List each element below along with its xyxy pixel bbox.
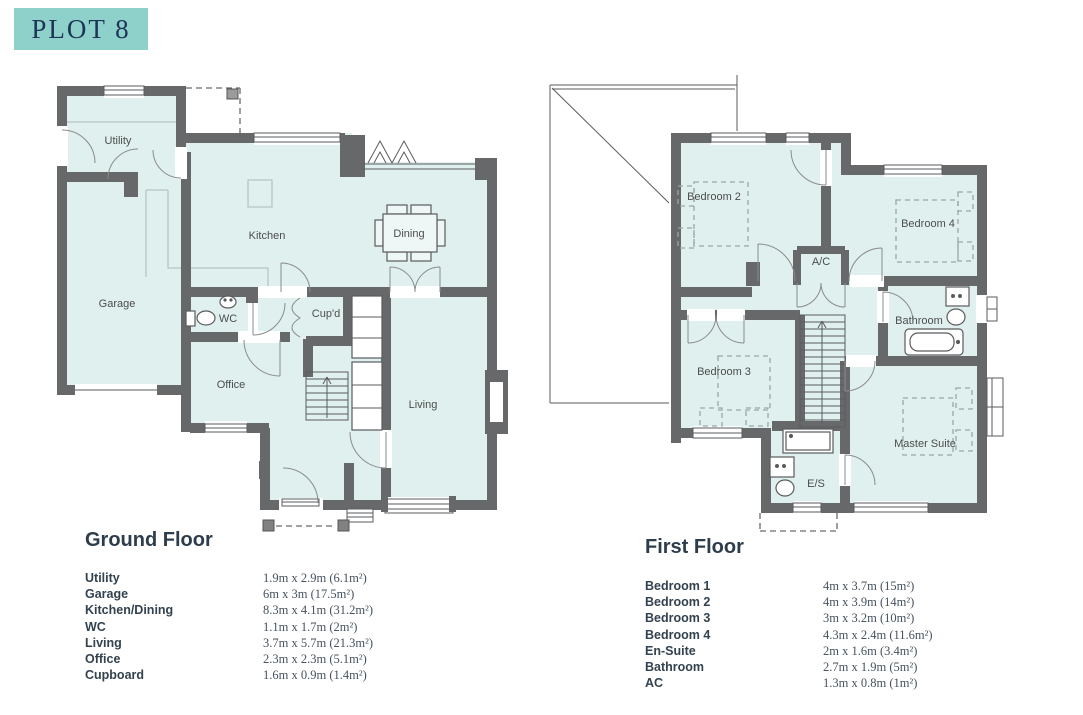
room-label-bedroom2: Bedroom 2 [687,191,741,203]
table-row: Living3.7m x 5.7m (21.3m²) [85,635,373,651]
room-name: Bedroom 1 [645,578,823,594]
room-name: Bathroom [645,659,823,675]
sink-icon [220,296,236,308]
table-row: Bedroom 14m x 3.7m (15m²) [645,578,933,594]
room-dims: 1.3m x 0.8m (1m²) [823,675,917,691]
table-row: Utility1.9m x 2.9m (6.1m²) [85,570,373,586]
floorplan-sheet: Utility Kitchen Dining Garage WC Cup'd O… [0,0,1083,715]
first-porch-dashed [760,513,837,531]
room-dims: 4m x 3.7m (15m²) [823,578,914,594]
canopy-post [227,89,238,99]
table-row: AC1.3m x 0.8m (1m²) [645,675,933,691]
porch-post [263,520,274,531]
room-label-bedroom3: Bedroom 3 [697,366,751,378]
plot-title-badge: PLOT 8 [14,8,148,50]
room-dims: 6m x 3m (17.5m²) [263,586,354,602]
room-label-dining: Dining [393,228,424,240]
room-label-kitchen: Kitchen [249,230,286,242]
room-name: Bedroom 2 [645,594,823,610]
first-floor-plan: Bedroom 2 Bedroom 4 A/C Bathroom Bedroom… [550,75,1003,531]
room-dims: 3m x 3.2m (10m²) [823,610,914,626]
first-floor-heading: First Floor [645,536,744,559]
table-row: Bedroom 24m x 3.9m (14m²) [645,594,933,610]
table-row: Bedroom 44.3m x 2.4m (11.6m²) [645,627,933,643]
room-dims: 2m x 1.6m (3.4m²) [823,643,917,659]
room-name: En-Suite [645,643,823,659]
first-floor-dimension-table: Bedroom 14m x 3.7m (15m²) Bedroom 24m x … [645,578,933,691]
table-row: Bedroom 33m x 3.2m (10m²) [645,610,933,626]
plot-title: PLOT 8 [31,14,130,45]
room-name: WC [85,619,263,635]
room-dims: 1.9m x 2.9m (6.1m²) [263,570,367,586]
toilet-icon [186,311,215,326]
room-label-wc: WC [219,313,237,325]
table-row: En-Suite2m x 1.6m (3.4m²) [645,643,933,659]
ground-floor-dimension-table: Utility1.9m x 2.9m (6.1m²) Garage6m x 3m… [85,570,373,683]
room-label-bathroom: Bathroom [895,315,943,327]
room-label-ac: A/C [812,256,830,268]
room-dims: 2.3m x 2.3m (5.1m²) [263,651,367,667]
room-name: Office [85,651,263,667]
room-label-office: Office [217,379,246,391]
table-row: Office2.3m x 2.3m (5.1m²) [85,651,373,667]
table-row: WC1.1m x 1.7m (2m²) [85,619,373,635]
room-dims: 8.3m x 4.1m (31.2m²) [263,602,373,618]
table-row: Garage6m x 3m (17.5m²) [85,586,373,602]
room-label-cupd: Cup'd [312,308,340,320]
shower-icon [783,429,833,453]
room-name: Living [85,635,263,651]
room-name: AC [645,675,823,691]
bathtub-icon [905,329,963,355]
room-name: Kitchen/Dining [85,602,263,618]
table-row: Cupboard1.6m x 0.9m (1.4m²) [85,667,373,683]
storage-units [352,296,382,430]
room-dims: 4m x 3.9m (14m²) [823,594,914,610]
room-name: Cupboard [85,667,263,683]
porch-post [338,520,349,531]
room-dims: 1.6m x 0.9m (1.4m²) [263,667,367,683]
room-dims: 2.7m x 1.9m (5m²) [823,659,917,675]
room-dims: 3.7m x 5.7m (21.3m²) [263,635,373,651]
room-label-living: Living [409,399,438,411]
room-name: Bedroom 4 [645,627,823,643]
room-dims: 4.3m x 2.4m (11.6m²) [823,627,933,643]
room-dims: 1.1m x 1.7m (2m²) [263,619,357,635]
room-label-es: E/S [807,478,825,490]
room-label-bedroom4: Bedroom 4 [901,218,955,230]
room-label-utility: Utility [105,135,132,147]
room-label-master: Master Suite [894,438,956,450]
room-name: Garage [85,586,263,602]
table-row: Kitchen/Dining8.3m x 4.1m (31.2m²) [85,602,373,618]
table-row: Bathroom2.7m x 1.9m (5m²) [645,659,933,675]
room-name: Utility [85,570,263,586]
ground-floor-heading: Ground Floor [85,529,213,552]
room-label-garage: Garage [99,298,136,310]
room-name: Bedroom 3 [645,610,823,626]
ground-floor-plan: Utility Kitchen Dining Garage WC Cup'd O… [56,84,508,531]
